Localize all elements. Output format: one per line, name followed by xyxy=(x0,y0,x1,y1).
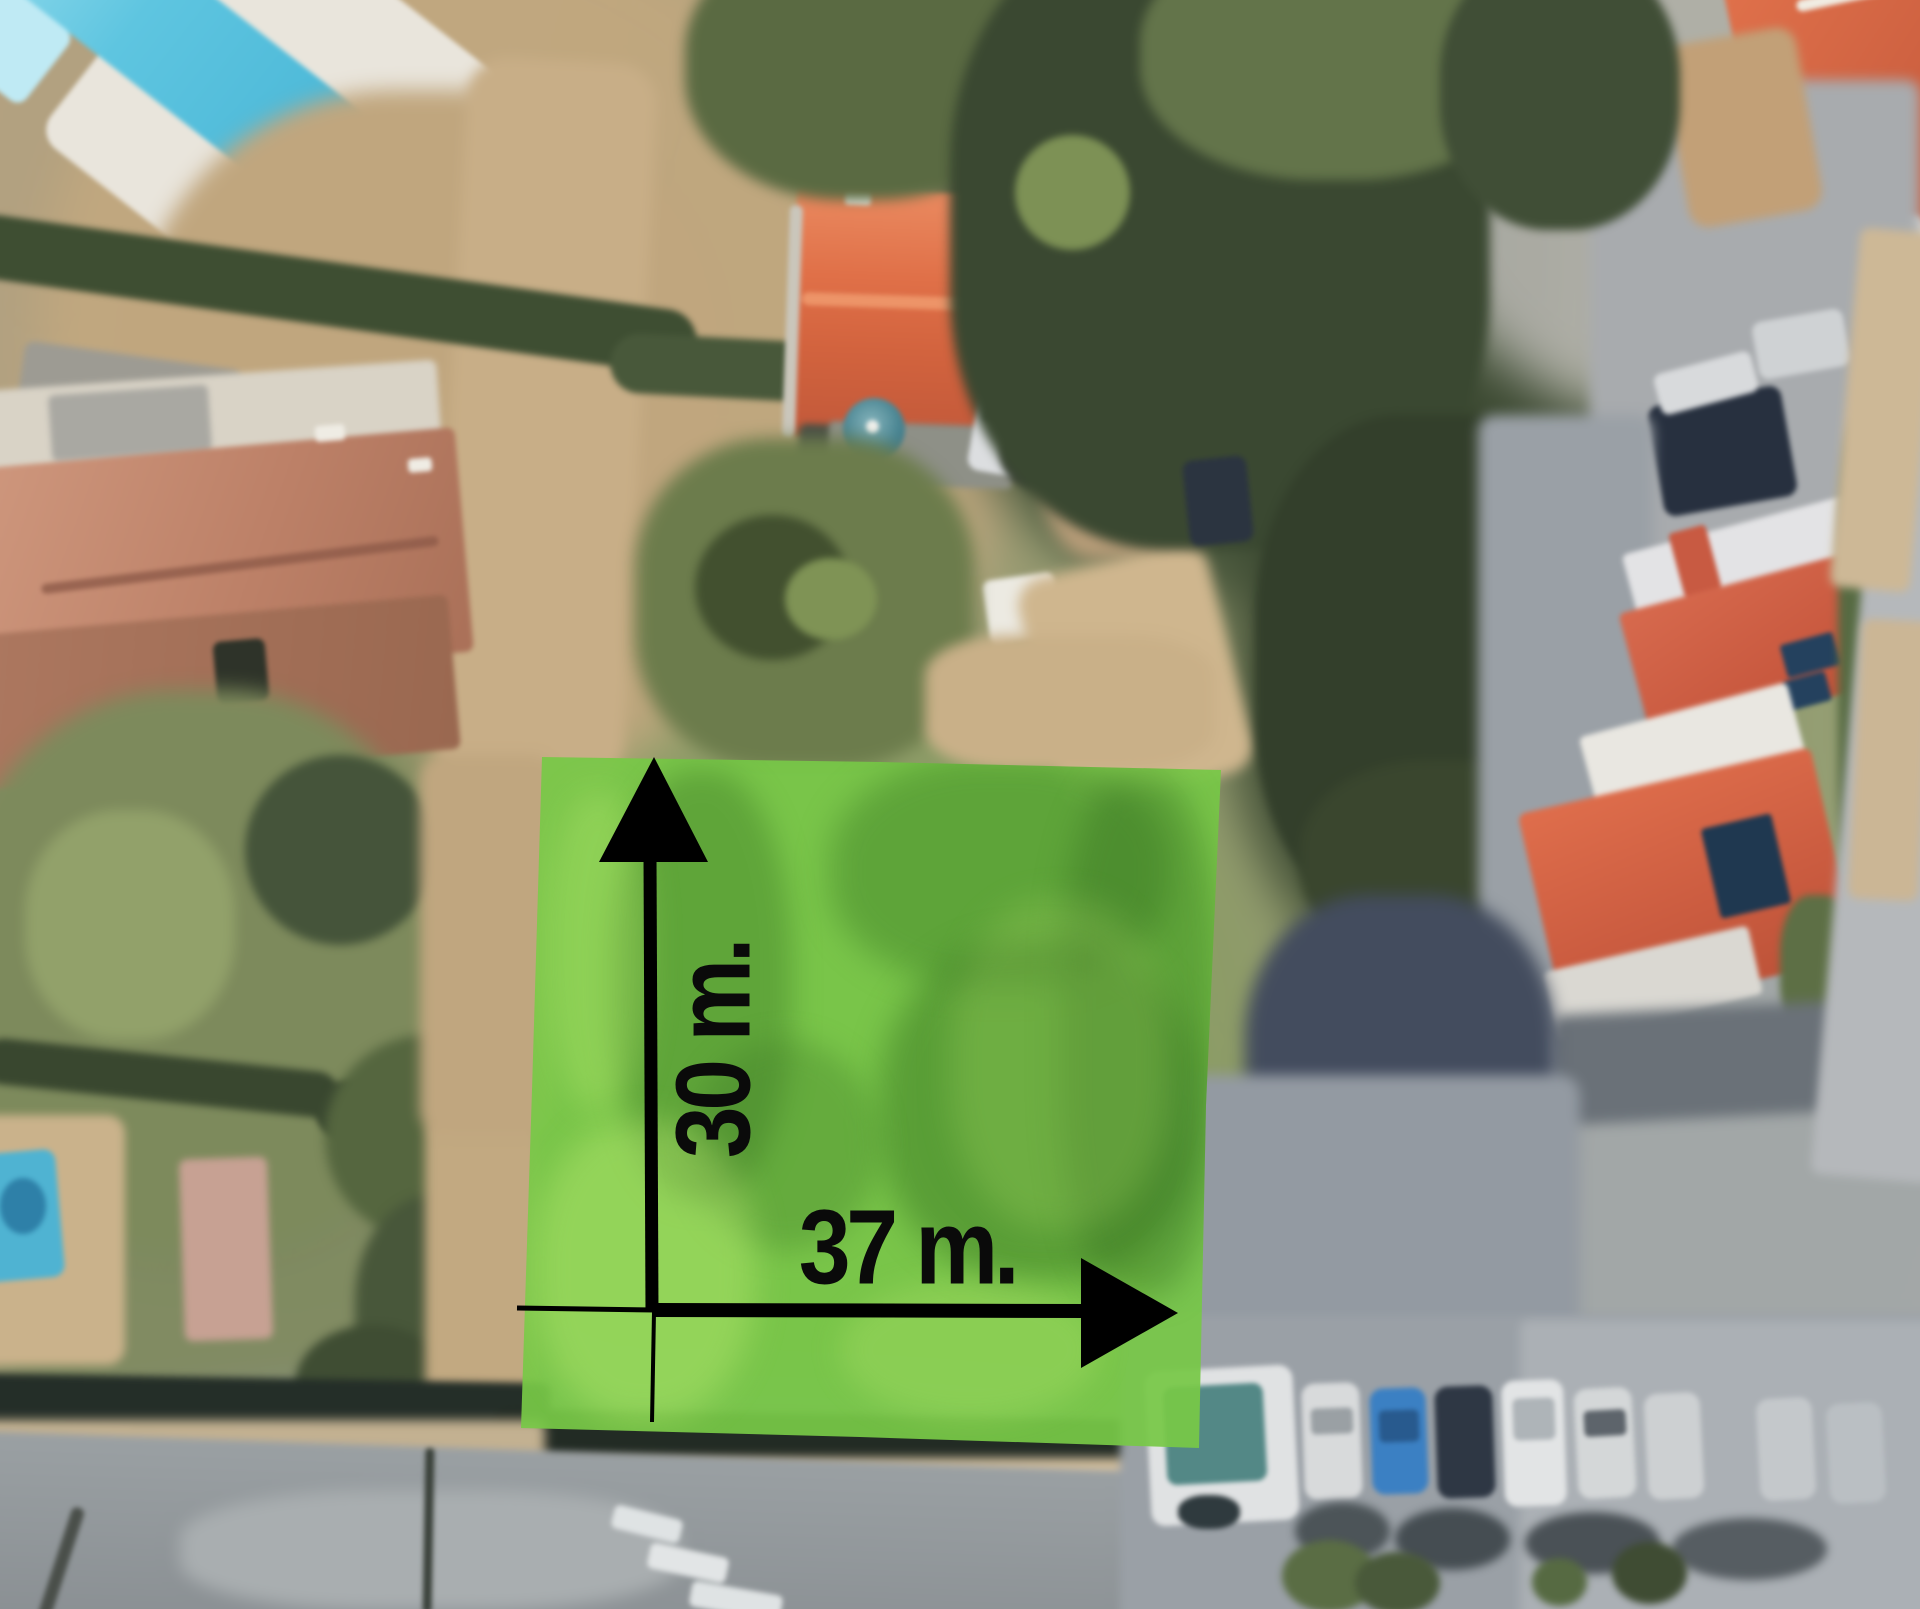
height-dimension-label: 30 m. xyxy=(654,942,775,1159)
dimension-annotations xyxy=(0,0,1920,1609)
width-dimension-label: 37 m. xyxy=(799,1188,1016,1309)
aerial-parcel-map: 30 m. 37 m. xyxy=(0,0,1920,1609)
